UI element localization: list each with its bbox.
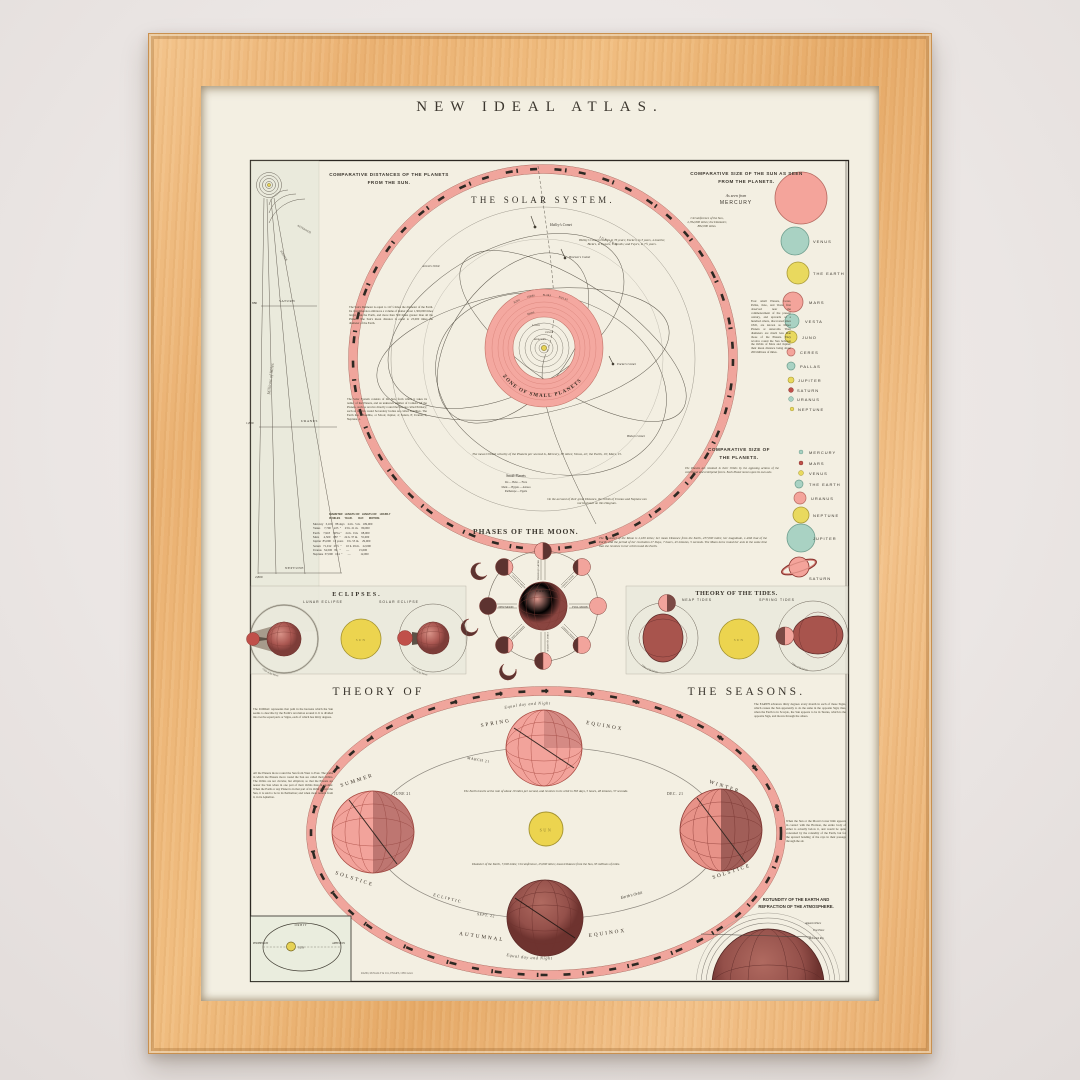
solar-eclipse-label: SOLAR ECLIPSE — [357, 600, 441, 604]
earths-orbit-label: Earth's Orbit — [619, 890, 644, 901]
crescent-label-1: CRESCENT MOON — [511, 575, 526, 590]
psize-label-earth: THE EARTH — [809, 482, 841, 487]
table-header-1: DIAMETER LENGTH OF LENGTH OF HOURLY — [329, 513, 390, 516]
perihelion-label: PERIHELION — [253, 942, 268, 945]
march-21-label: MARCH 21 — [467, 756, 490, 764]
psize-label-jupiter: JUPITER — [813, 536, 837, 541]
uranus-neptune-note: On the account of their great Distance, … — [546, 497, 648, 505]
legend-label-venus: VENUS — [813, 239, 832, 244]
as-seen-from-label: As seen from — [701, 193, 771, 198]
aphelion-label: APHELION — [332, 942, 345, 945]
encke-comet-label: Encke's Comet — [617, 362, 636, 366]
distances-title-line2: FROM THE SUN. — [305, 180, 473, 186]
planet-sizes-title-line1: COMPARATIVE SIZE OF — [683, 447, 795, 453]
eclipse-sun-label: SUN — [356, 638, 366, 642]
new-moon-label: NEW MOON — [499, 606, 514, 609]
signs-note: The EARTH advances thirty degrees every … — [754, 703, 846, 719]
psize-label-neptune: NEPTUNE — [813, 513, 839, 518]
small-planets-list3: Parthenope — Egeria — [481, 490, 551, 493]
psize-label-saturn: SATURN — [809, 576, 831, 581]
legend-label-saturn: SATURN — [797, 388, 819, 393]
svg-text:EARTH: EARTH — [532, 324, 540, 327]
seasons-title-right: THE SEASONS. — [679, 686, 814, 698]
svg-text:MERCURY: MERCURY — [534, 338, 546, 341]
neap-tides-label: NEAP TIDES — [661, 598, 733, 602]
first-quarter-label: FIRST QUARTER — [546, 632, 549, 651]
tides-sun-label: SUN — [734, 638, 744, 642]
comet-periods-note: Halley's Comet revolves in 76 years; Enc… — [578, 238, 666, 246]
earth-travel-note: The Earth travels at the rate of about 1… — [453, 789, 639, 793]
full-moon-label: FULL MOON — [572, 606, 588, 609]
seasons-title-left: THEORY OF — [321, 686, 436, 698]
legend-label-ceres: CERES — [800, 350, 819, 355]
summer-label: SUMMER — [340, 773, 375, 789]
moon-note: The Diameter of the Moon is 2,160 miles;… — [599, 536, 767, 549]
moon-earth-label: EARTH — [536, 589, 550, 593]
rotundity-title-line1: ROTUNDITY OF THE EARTH AND — [744, 897, 848, 903]
neptune-tick-value: 2,800 — [255, 575, 263, 579]
spring-equinox-label: EQUINOX — [586, 720, 624, 732]
legend-label-neptune: NEPTUNE — [798, 407, 824, 412]
perihelion-sun-label: SUN — [298, 946, 305, 950]
sept-22-label: SEPT. 22 — [477, 912, 495, 918]
psize-label-venus: VENUS — [809, 471, 828, 476]
earth-dimensions-note: Diameter of the Earth, 7,918 miles; Circ… — [423, 862, 669, 866]
zodiac-note: The ZODIAC represents that path in the h… — [253, 708, 333, 720]
equal-day-night-top: Equal day and Night — [503, 700, 551, 709]
sun-sizes-title-line1: COMPARATIVE SIZE OF THE SUN AS SEEN — [644, 171, 849, 177]
legend-label-juno: JUNO — [802, 335, 817, 340]
tides-title: THEORY OF THE TIDES. — [679, 590, 794, 597]
legend-label-uranus: URANUS — [797, 397, 820, 402]
svg-text:VENUS: VENUS — [545, 331, 554, 334]
outer-crescent-moons — [461, 563, 516, 680]
saturn-tick-value: 880 — [252, 301, 257, 305]
sun-size-legend-circles — [775, 172, 827, 411]
planet-sizes-title-line2: THE PLANETS. — [683, 455, 795, 461]
legend-label-mars: MARS — [809, 300, 825, 305]
publisher-imprint: RAND, McNALLY & CO., ENGR'S, CHICAGO. — [361, 972, 413, 975]
spring-globe — [506, 710, 582, 786]
chart-border — [251, 161, 849, 982]
solar-system-note: The Solar System consists of the Sun, fr… — [347, 398, 427, 422]
seasons-diagram: SUN — [307, 687, 786, 980]
spring-label: SPRING — [480, 718, 511, 729]
sun-size-mercury-label: MERCURY — [697, 200, 775, 206]
gibbous-label-1: GIBBOUS MOON — [561, 575, 575, 589]
true-place-label: True Place — [813, 929, 824, 932]
atlas-poster: NEW IDEAL ATLAS. — [201, 86, 879, 1001]
moon-phases-wheel: EARTH NEW MOON FULL MOON FIRST QUARTER T… — [461, 543, 606, 681]
ecliptic-label: ECLIPTIC — [433, 892, 463, 904]
sun-sizes-title-line2: FROM THE PLANETS. — [644, 179, 849, 185]
autumn-equinox-label: EQUINOX — [588, 928, 626, 939]
sun-diameter-note: The Sun's Diameter is equal to 111½ time… — [349, 306, 433, 326]
june-21-label: JUNE 21 — [394, 792, 411, 796]
neptune-tick-label: NEPTUNE — [285, 566, 304, 570]
legend-label-vesta: VESTA — [805, 319, 823, 324]
dec-21-label: DEC. 21 — [667, 792, 683, 796]
picture-frame: NEW IDEAL ATLAS. — [148, 33, 932, 1054]
orbits-note: All the Planets move round the Sun from … — [253, 772, 333, 800]
arrest-orbit-label: Arrest's Orbit — [422, 264, 439, 268]
moon-phases-title: PHASES OF THE MOON. — [473, 527, 579, 536]
small-planets-list2: Metis — Hygeia — Astraea — [481, 486, 551, 489]
saturn-with-ring — [780, 556, 818, 578]
refracted-ray-label: Refracted Ray — [809, 937, 824, 940]
small-planets-label: Small Planets — [486, 474, 546, 479]
orbit-label: ORBIT — [295, 923, 308, 927]
wall: NEW IDEAL ATLAS. — [0, 0, 1080, 1080]
saturn-tick-label: SATURN — [279, 299, 295, 303]
perihelion-box: SUN ORBIT PERIHELION APHELION — [251, 916, 352, 982]
psize-label-mars: MARS — [809, 461, 825, 466]
legend-label-earth: THE EARTH — [813, 271, 845, 276]
psize-label-uranus: URANUS — [811, 496, 834, 501]
uranus-tick-value: 1,800 — [246, 421, 254, 425]
svg-text:Equal day and Night: Equal day and Night — [503, 700, 551, 709]
biela-comet-label: Biela's Comet — [627, 434, 645, 438]
winter-globe — [680, 789, 762, 871]
autumn-globe — [507, 880, 583, 956]
eclipses-title: ECLIPSES. — [307, 591, 407, 598]
distances-title-line1: COMPARATIVE DISTANCES OF THE PLANETS — [305, 172, 473, 178]
sun-circumference-note: Circumference of the Sun, 2,764,600 mile… — [653, 216, 761, 229]
orbital-velocity-note: The mean Orbital velocity of the Planets… — [451, 452, 643, 456]
apparent-place-label: Apparent Place — [805, 922, 821, 925]
brorsen-comet-label: Brorsen's Comet — [569, 255, 590, 259]
summer-globe — [332, 791, 414, 873]
seasons-sun-label: SUN — [540, 828, 553, 833]
table-row: Neptune 37,000 164 " — 12,000 — [313, 553, 369, 557]
rotundity-title-line2: REFRACTION OF THE ATMOSPHERE. — [744, 904, 848, 910]
inner-planet-names: EARTH VENUS MERCURY — [532, 324, 554, 341]
uranus-tick-label: URANUS — [301, 419, 318, 423]
legend-label-jupiter: JUPITER — [798, 378, 822, 383]
solar-system-title: THE SOLAR SYSTEM. — [443, 195, 643, 205]
legend-label-pallas: PALLAS — [800, 364, 821, 369]
psize-label-mercury: MERCURY — [809, 450, 836, 455]
refraction-note: When the Sun or the Moon's lower limb ap… — [786, 820, 846, 844]
minor-planets-note: Four small Planets, Ceres, Pallas, Juno,… — [751, 300, 791, 355]
autumnal-label: AUTUMNAL — [459, 931, 505, 943]
svg-text:FLORA: FLORA — [543, 294, 552, 297]
planet-sizes-note: The Planets are retained in their Orbits… — [685, 467, 779, 475]
sun-center — [541, 345, 546, 350]
halley-comet-label: Halley's Comet — [550, 223, 572, 228]
third-quarter-label: THIRD QUARTER — [537, 560, 540, 580]
lunar-eclipse-label: LUNAR ECLIPSE — [281, 600, 365, 604]
spring-tides-label: SPRING TIDES — [739, 598, 815, 602]
table-header-2: IN MILES YEAR. DAY. MOTION. — [329, 517, 380, 520]
small-planets-list1: Iris — Hebe — Flora — [481, 481, 551, 484]
